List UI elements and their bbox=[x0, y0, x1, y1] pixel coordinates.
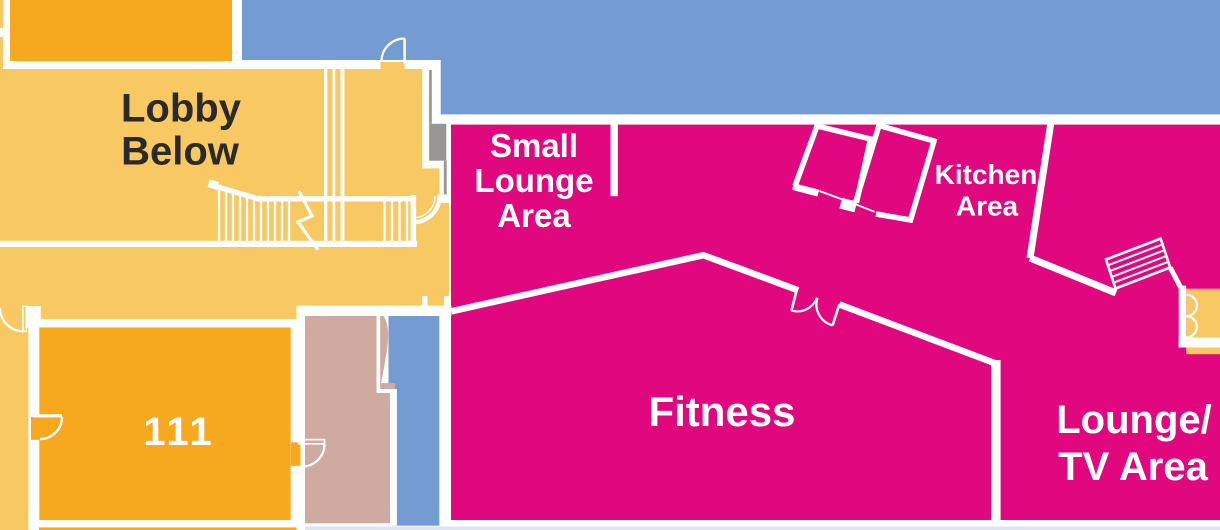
svg-text:TV Area: TV Area bbox=[1058, 445, 1208, 489]
svg-text:Small: Small bbox=[490, 127, 578, 164]
svg-text:Fitness: Fitness bbox=[648, 388, 795, 435]
svg-text:Area: Area bbox=[956, 191, 1019, 222]
svg-text:Below: Below bbox=[121, 130, 240, 174]
svg-text:Kitchen: Kitchen bbox=[935, 159, 1038, 190]
svg-text:Lobby: Lobby bbox=[121, 87, 242, 131]
svg-text:Lounge/: Lounge/ bbox=[1056, 398, 1212, 442]
svg-text:111: 111 bbox=[143, 410, 214, 454]
svg-text:Lounge: Lounge bbox=[474, 162, 593, 199]
svg-text:Area: Area bbox=[497, 197, 571, 234]
